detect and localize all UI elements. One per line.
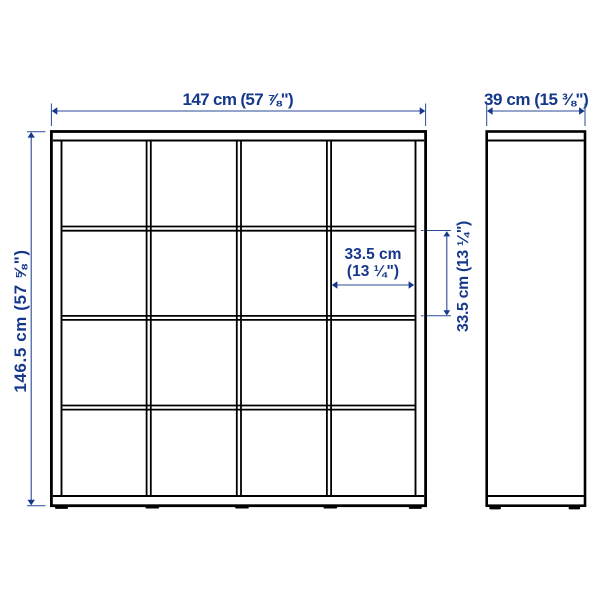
- svg-text:39 cm (15 ⅜"): 39 cm (15 ⅜"): [484, 90, 588, 109]
- svg-text:(13 ¼"): (13 ¼"): [347, 263, 399, 280]
- svg-text:33.5 cm (13 ¼"): 33.5 cm (13 ¼"): [455, 221, 472, 332]
- svg-text:33.5 cm: 33.5 cm: [345, 246, 402, 263]
- svg-text:146.5 cm (57 ⅝"): 146.5 cm (57 ⅝"): [11, 249, 30, 392]
- svg-text:147 cm (57 ⅞"): 147 cm (57 ⅞"): [183, 90, 293, 109]
